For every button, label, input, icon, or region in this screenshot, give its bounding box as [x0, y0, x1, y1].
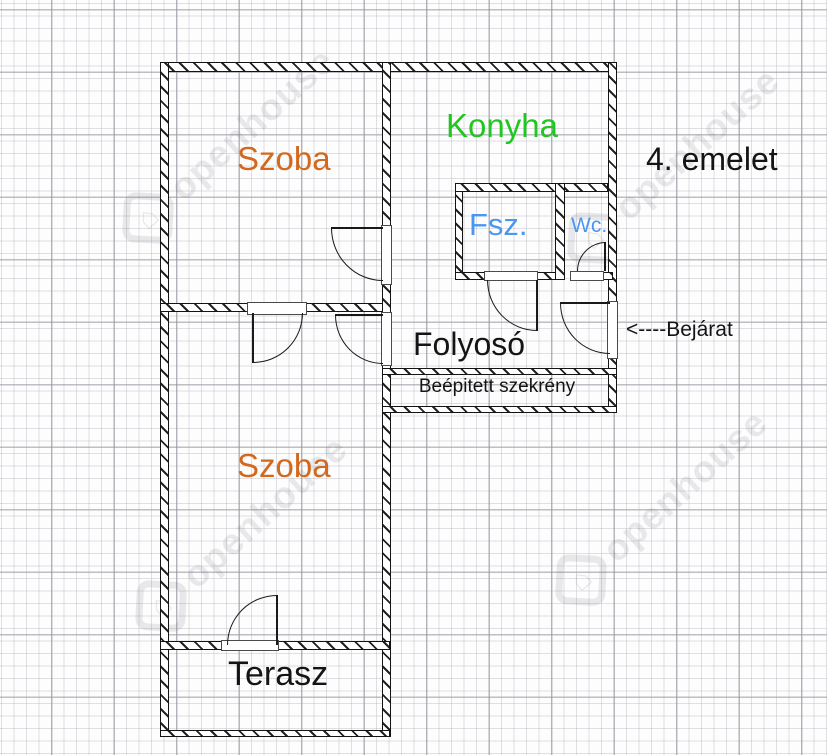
wall-fsz-wc-top: [455, 183, 608, 192]
wall-closet-top: [382, 368, 617, 375]
watermark: ⌂ openhouse: [546, 399, 779, 616]
wall-fsz-bottom-left: [455, 272, 485, 280]
wall-mid-vertical-lower: [382, 365, 391, 737]
wall-outer-right-upper: [608, 62, 617, 302]
room-label-szoba-top: Szoba: [237, 142, 331, 177]
door-arc-entrance: [560, 303, 610, 354]
wall-fsz-left: [455, 183, 463, 280]
wall-outer-left: [160, 62, 169, 737]
wall-room-divider-right: [306, 303, 383, 312]
wall-terrace-bottom: [160, 730, 390, 737]
wall-mid-vertical-upper: [382, 62, 391, 226]
room-label-konyha: Konyha: [446, 109, 558, 144]
wall-closet-bottom: [382, 406, 617, 413]
watermark-text: openhouse: [594, 402, 775, 571]
room-label-folyoso: Folyosó: [413, 328, 525, 362]
floor-label: 4. emelet: [646, 143, 778, 177]
door-arc-terrace: [227, 595, 277, 645]
wall-terrace-top-left: [160, 641, 222, 650]
wall-terrace-top-right: [278, 641, 390, 650]
room-label-szekreny: Beépitett szekrény: [384, 377, 610, 397]
room-label-szoba-bottom: Szoba: [237, 449, 331, 484]
room-label-wc: Wc.: [571, 215, 607, 237]
floorplan: ⌂ openhouse ⌂ openhouse ⌂ openhouse ⌂ op…: [0, 0, 827, 755]
door-opening-wc: [570, 271, 604, 281]
wall-room-divider-left: [160, 303, 248, 312]
door-arc-between-rooms: [253, 313, 303, 363]
door-arc-szoba-top: [331, 228, 383, 281]
room-label-fsz: Fsz.: [469, 209, 528, 242]
door-arc-szoba-bottom: [335, 315, 383, 364]
wall-fsz-wc-divider: [555, 183, 565, 280]
wall-fsz-bottom-right: [537, 272, 556, 280]
house-logo-icon: ⌂: [555, 554, 608, 607]
entrance-label: <----Bejárat: [626, 319, 733, 341]
room-label-terasz: Terasz: [228, 657, 328, 693]
wall-mid-vertical-between-doors: [382, 284, 391, 313]
wall-wc-bottom-right: [603, 272, 613, 280]
door-arc-fsz: [487, 280, 537, 331]
